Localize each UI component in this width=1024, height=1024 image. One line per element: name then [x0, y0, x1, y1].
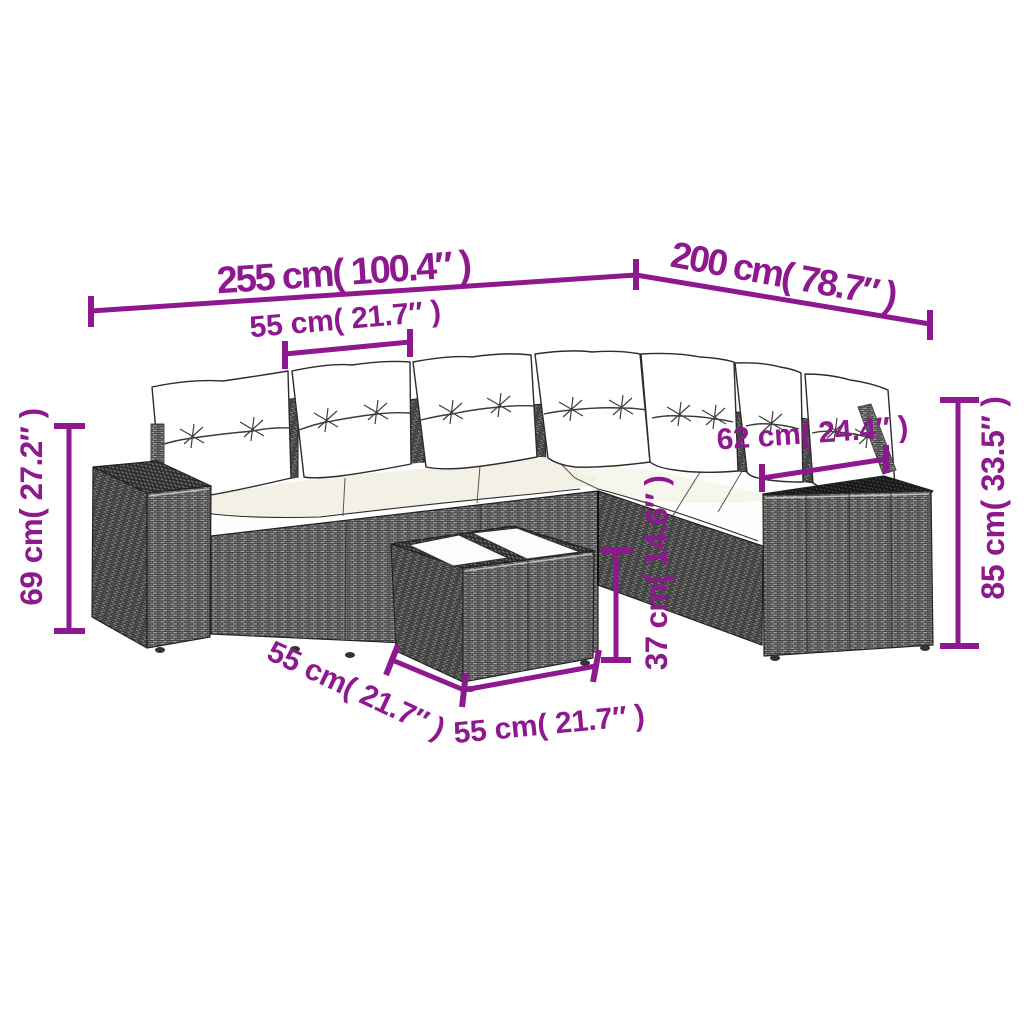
svg-text:69 cm( 27.2″ ): 69 cm( 27.2″ )	[13, 408, 49, 605]
svg-text:85 cm( 33.5″ ): 85 cm( 33.5″ )	[975, 396, 1011, 599]
svg-text:37 cm( 14.6″ ): 37 cm( 14.6″ )	[638, 476, 674, 670]
